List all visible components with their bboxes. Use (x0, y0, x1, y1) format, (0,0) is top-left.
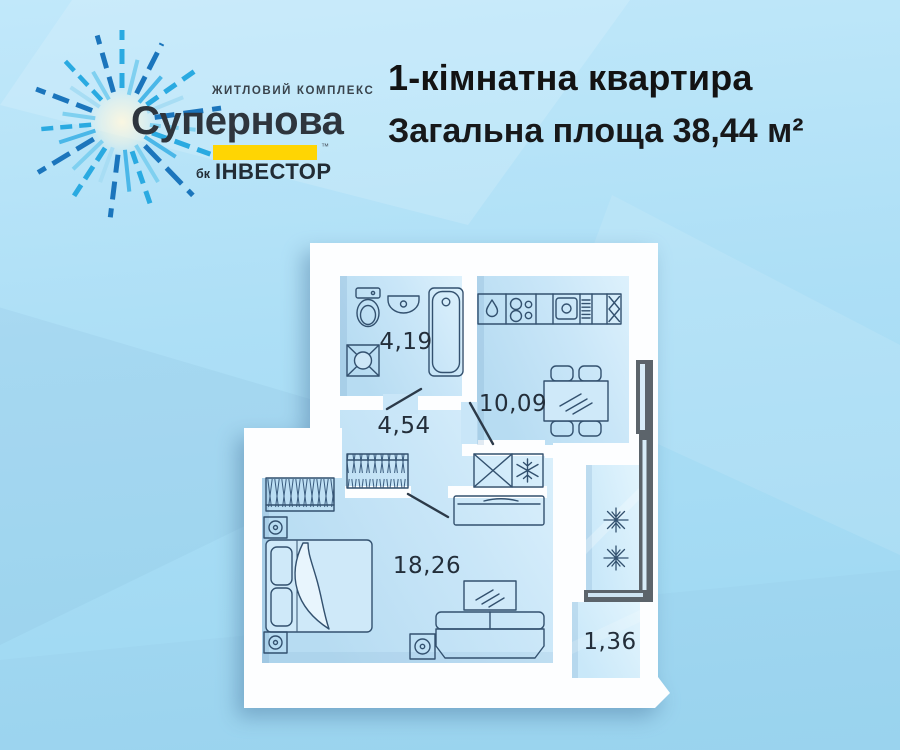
room-area-bathroom: 4,19 (379, 329, 432, 355)
plant-icon (604, 546, 628, 570)
flyer: ЖИТЛОВИЙ КОМПЛЕКС Супернова ™ бк ІНВЕСТО… (0, 0, 900, 750)
plant-icon (604, 508, 628, 532)
room-area-living-room: 18,26 (393, 553, 461, 579)
kitchen-window-glass (640, 364, 645, 430)
bedroom-closet-icon (266, 478, 334, 511)
floorplan: 4,19 4,54 10,09 18,26 1,36 (0, 0, 900, 750)
room-area-hallway: 4,54 (377, 413, 430, 439)
balcony-window-glass (588, 593, 643, 597)
bed-icon (266, 540, 372, 632)
room-area-balcony: 1,36 (583, 629, 636, 655)
coffee-table-icon (464, 581, 516, 610)
room-area-kitchen: 10,09 (479, 391, 547, 417)
hallway-closet-icon (347, 454, 408, 488)
loggia-glazing-glass (643, 440, 647, 590)
